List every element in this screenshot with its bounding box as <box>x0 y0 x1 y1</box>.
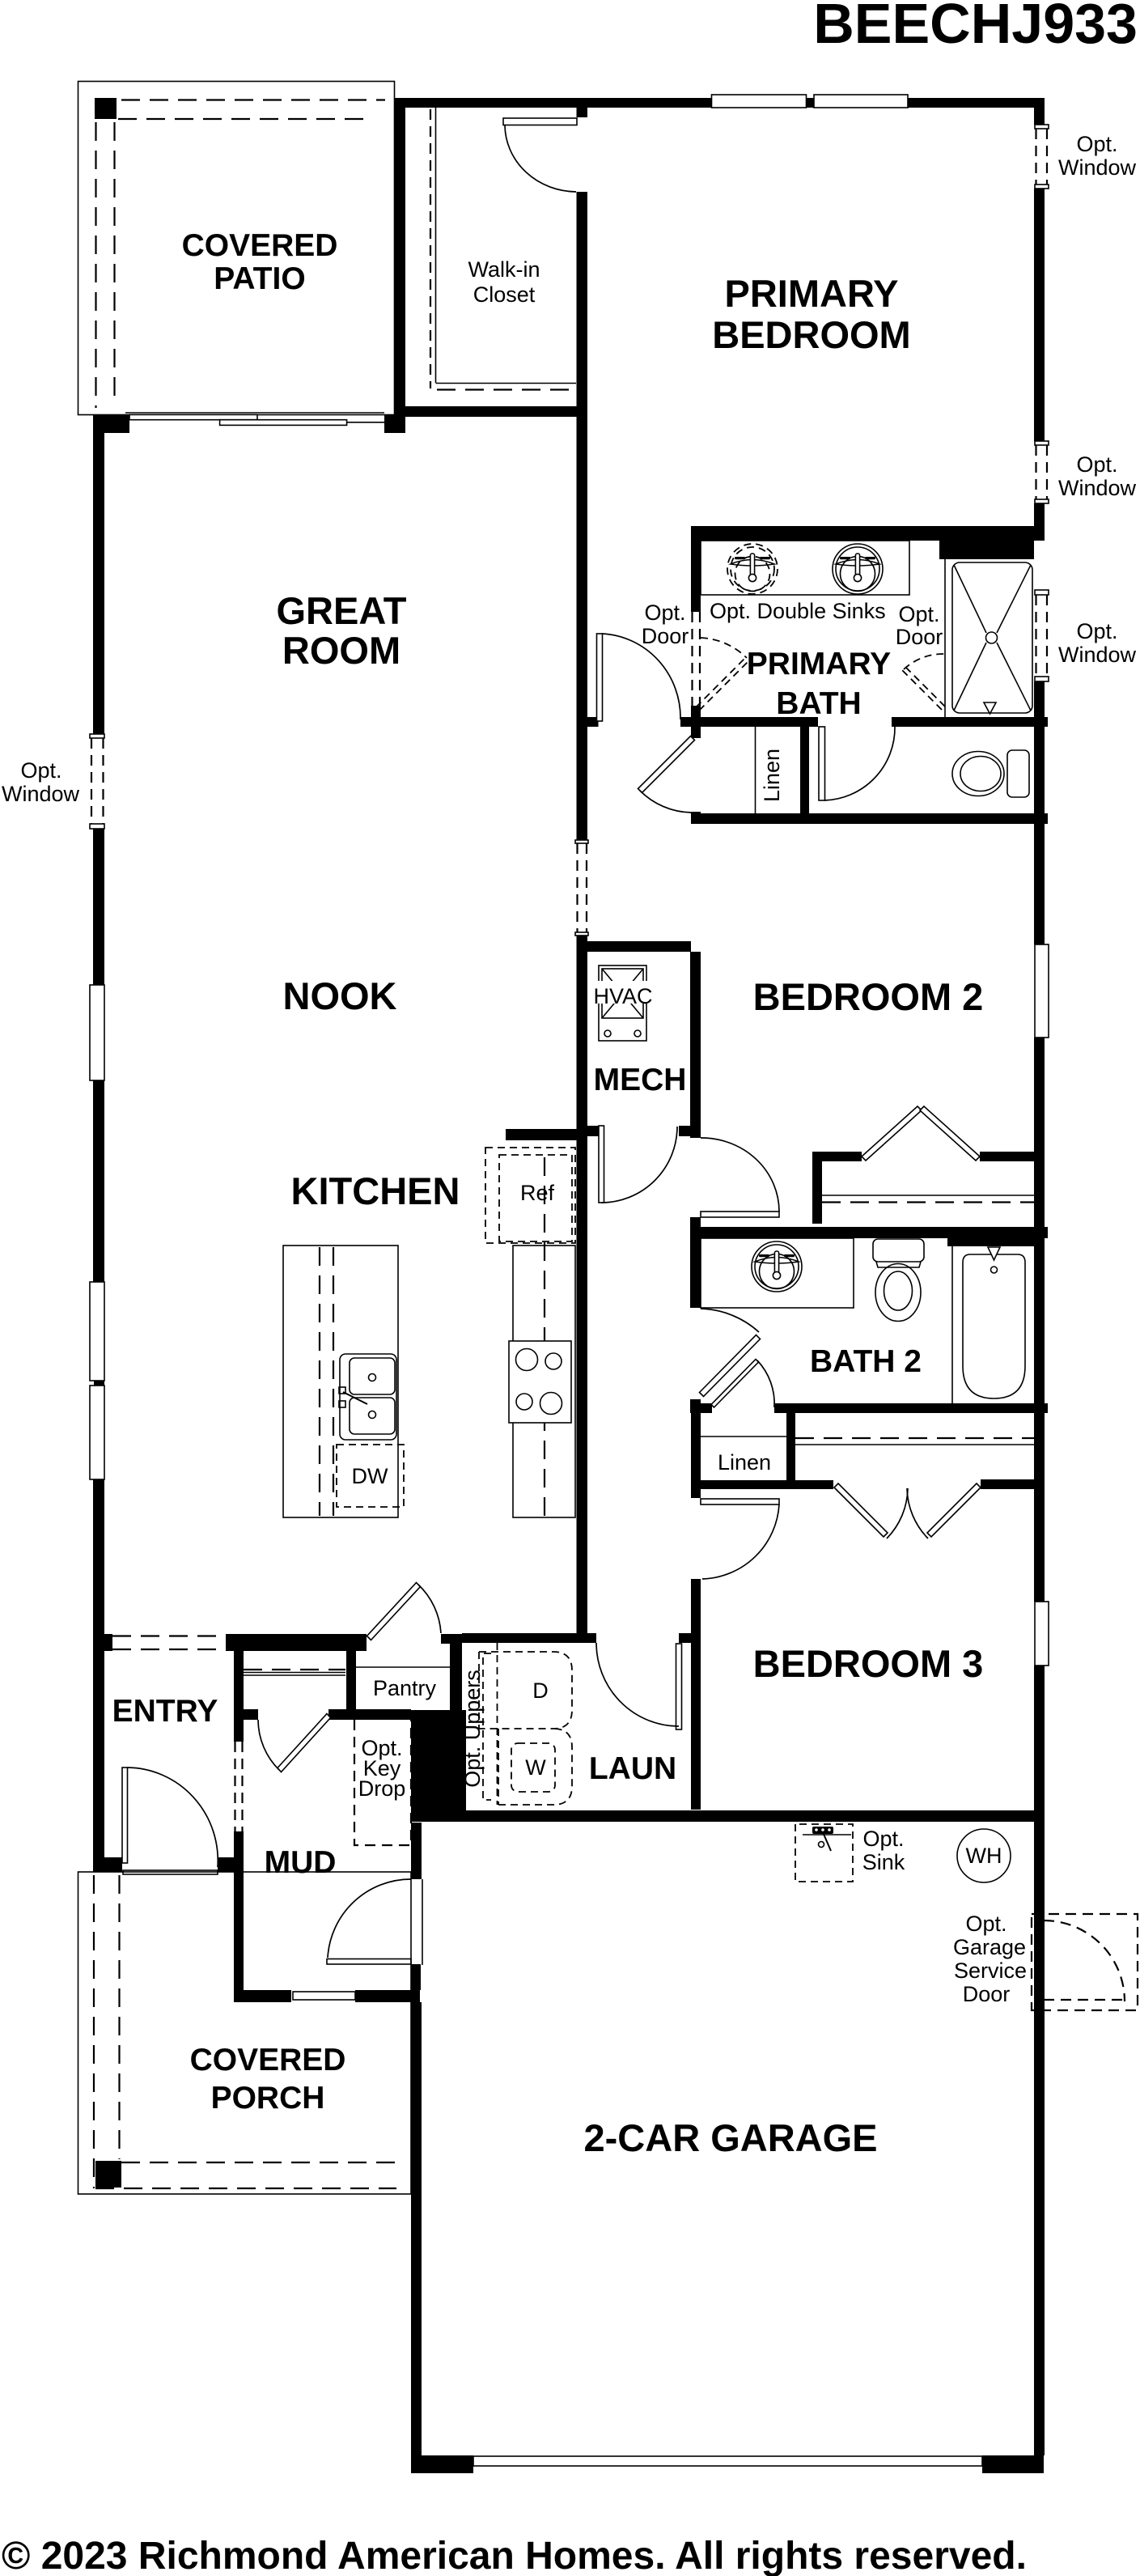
svg-text:Door: Door <box>963 1982 1011 2006</box>
svg-text:Walk-in: Walk-in <box>468 257 540 282</box>
svg-text:BEECHJ933: BEECHJ933 <box>813 0 1138 55</box>
svg-text:MECH: MECH <box>594 1063 687 1097</box>
svg-text:WH: WH <box>966 1844 1002 1868</box>
svg-text:2-CAR GARAGE: 2-CAR GARAGE <box>584 2116 878 2159</box>
svg-text:GREAT: GREAT <box>276 589 406 632</box>
svg-text:Service: Service <box>954 1959 1027 1983</box>
svg-text:Opt.: Opt. <box>1076 132 1117 156</box>
svg-text:Pantry: Pantry <box>373 1676 437 1700</box>
svg-text:Drop: Drop <box>358 1776 406 1801</box>
svg-text:Door: Door <box>896 625 943 649</box>
svg-text:Opt.: Opt. <box>1076 619 1117 643</box>
svg-text:Garage: Garage <box>953 1935 1026 1959</box>
svg-text:Closet: Closet <box>473 282 536 307</box>
svg-text:© 2023 Richmond American Homes: © 2023 Richmond American Homes. All righ… <box>2 2535 1027 2576</box>
svg-text:BEDROOM: BEDROOM <box>712 313 910 356</box>
svg-text:Opt.: Opt. <box>898 602 939 626</box>
svg-text:Window: Window <box>1058 155 1137 180</box>
svg-text:COVERED: COVERED <box>182 228 338 263</box>
svg-text:Linen: Linen <box>718 1450 771 1475</box>
svg-text:LAUN: LAUN <box>589 1751 676 1786</box>
svg-text:Opt.: Opt. <box>644 601 685 625</box>
svg-text:Opt. Uppers: Opt. Uppers <box>460 1670 485 1788</box>
svg-text:HVAC: HVAC <box>593 984 652 1008</box>
svg-text:COVERED: COVERED <box>190 2043 346 2077</box>
svg-text:BEDROOM 2: BEDROOM 2 <box>753 975 984 1018</box>
svg-text:D: D <box>532 1678 549 1703</box>
svg-text:ROOM: ROOM <box>282 629 400 672</box>
svg-text:Opt.: Opt. <box>862 1827 904 1851</box>
svg-text:Opt.: Opt. <box>965 1912 1007 1936</box>
svg-text:NOOK: NOOK <box>283 974 397 1017</box>
svg-text:PATIO: PATIO <box>214 261 305 296</box>
svg-text:BATH 2: BATH 2 <box>810 1344 922 1379</box>
svg-text:DW: DW <box>352 1464 388 1488</box>
svg-text:Ref: Ref <box>520 1181 555 1205</box>
svg-text:Opt.: Opt. <box>20 758 61 783</box>
svg-text:Door: Door <box>642 624 689 648</box>
svg-text:W: W <box>525 1755 546 1780</box>
svg-text:Window: Window <box>1058 643 1137 667</box>
svg-text:PORCH: PORCH <box>211 2081 325 2116</box>
svg-text:KITCHEN: KITCHEN <box>291 1169 460 1212</box>
svg-text:Window: Window <box>2 782 80 806</box>
svg-text:Linen: Linen <box>760 749 784 802</box>
svg-text:Opt.: Opt. <box>1076 452 1117 477</box>
svg-text:Window: Window <box>1058 476 1137 500</box>
svg-text:PRIMARY: PRIMARY <box>747 647 891 681</box>
svg-text:Opt. Double Sinks: Opt. Double Sinks <box>710 599 886 623</box>
svg-text:PRIMARY: PRIMARY <box>725 272 899 315</box>
svg-text:BATH: BATH <box>776 686 861 721</box>
svg-text:Sink: Sink <box>862 1850 905 1874</box>
svg-text:ENTRY: ENTRY <box>112 1694 218 1729</box>
svg-text:BEDROOM 3: BEDROOM 3 <box>753 1642 984 1685</box>
svg-text:MUD: MUD <box>265 1845 337 1880</box>
